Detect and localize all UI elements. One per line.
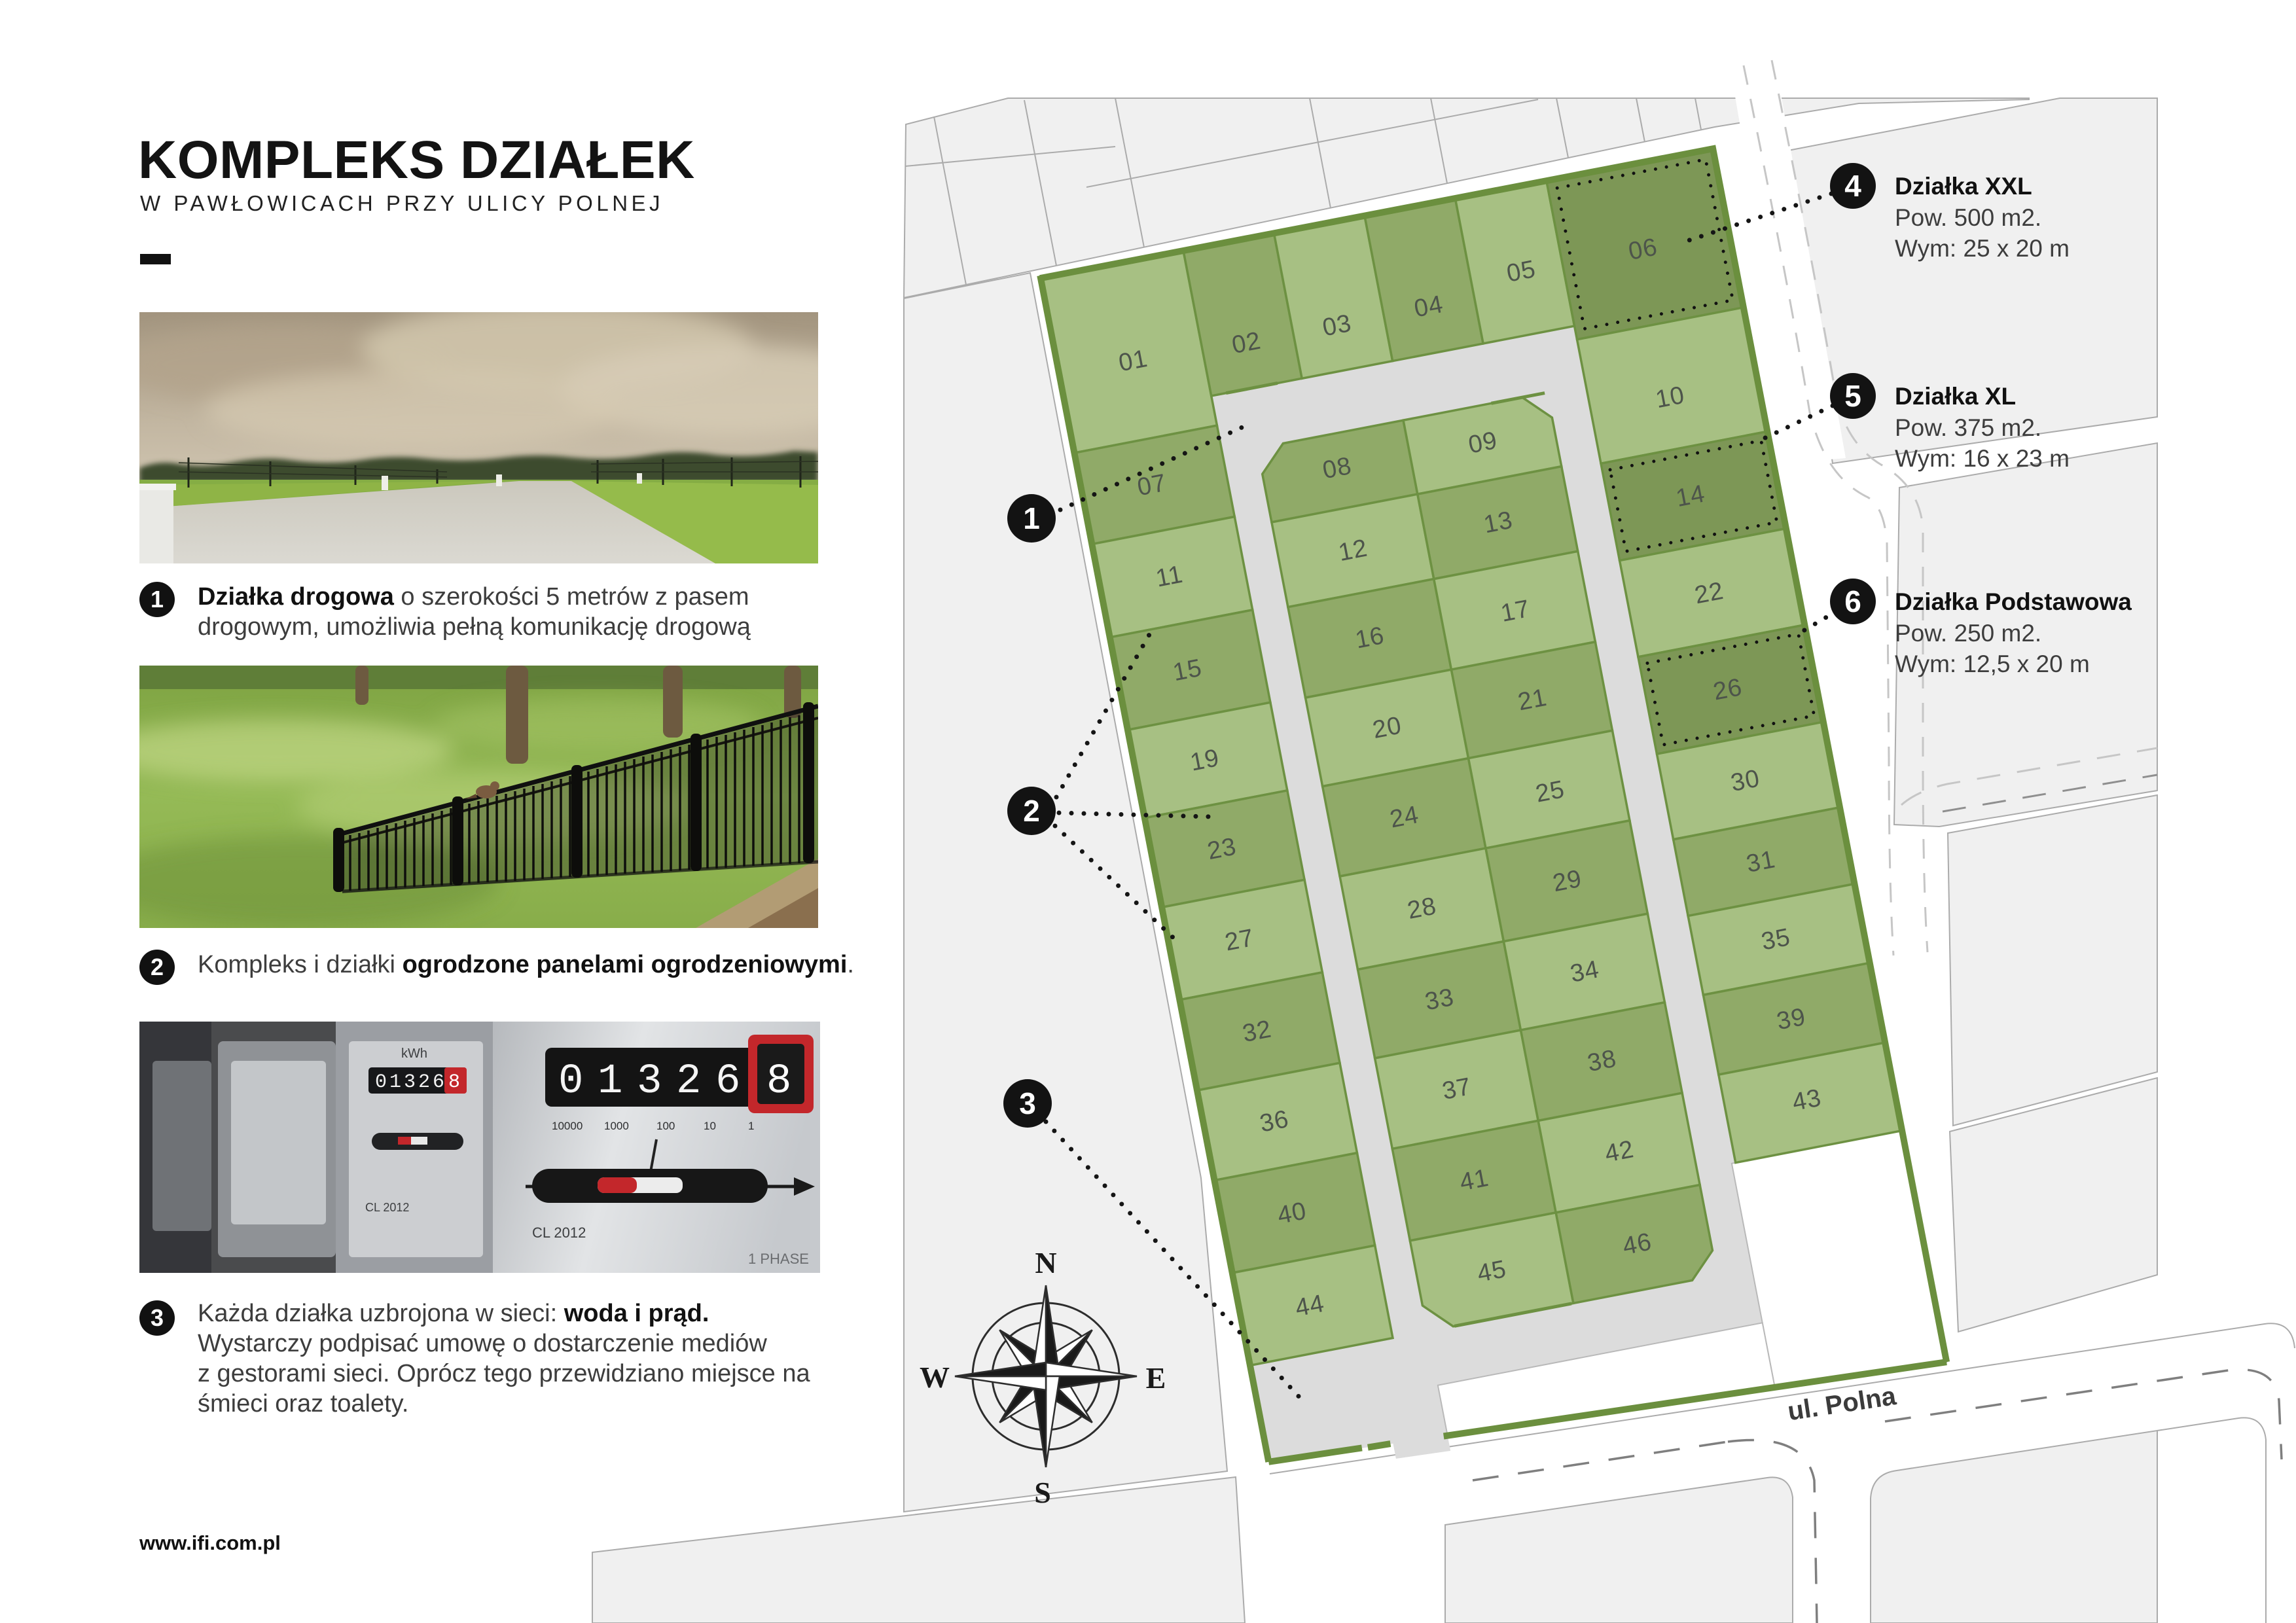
svg-text:33: 33 [1423, 984, 1456, 1016]
svg-text:31: 31 [1744, 846, 1778, 878]
svg-text:03: 03 [1320, 310, 1354, 342]
svg-text:06: 06 [1626, 233, 1660, 266]
svg-text:37: 37 [1440, 1073, 1473, 1105]
svg-text:23: 23 [1205, 833, 1238, 866]
svg-text:N: N [1035, 1246, 1056, 1279]
svg-text:21: 21 [1516, 684, 1549, 717]
svg-text:22: 22 [1693, 577, 1726, 610]
svg-text:05: 05 [1505, 255, 1538, 288]
svg-text:ul. Polna: ul. Polna [1785, 1382, 1898, 1426]
svg-text:01: 01 [1117, 345, 1150, 378]
svg-text:02: 02 [1230, 327, 1263, 360]
svg-text:25: 25 [1534, 776, 1567, 808]
svg-text:29: 29 [1551, 865, 1584, 898]
svg-text:4: 4 [1844, 169, 1861, 203]
svg-text:43: 43 [1790, 1084, 1823, 1116]
svg-text:S: S [1034, 1476, 1051, 1509]
svg-text:Pow. 250 m2.: Pow. 250 m2. [1895, 620, 2041, 647]
svg-text:3: 3 [1019, 1086, 1036, 1120]
svg-text:Wym: 12,5 x 20 m: Wym: 12,5 x 20 m [1895, 651, 2090, 677]
svg-text:27: 27 [1223, 924, 1256, 957]
svg-text:5: 5 [1844, 379, 1861, 413]
svg-text:6: 6 [1844, 584, 1861, 618]
svg-text:28: 28 [1405, 892, 1439, 925]
svg-text:20: 20 [1371, 711, 1404, 744]
svg-text:2: 2 [1023, 794, 1040, 828]
svg-text:26: 26 [1711, 673, 1744, 706]
svg-text:38: 38 [1585, 1045, 1619, 1078]
svg-text:35: 35 [1759, 923, 1793, 956]
svg-text:16: 16 [1353, 622, 1386, 654]
svg-text:Pow. 500 m2.: Pow. 500 m2. [1895, 204, 2041, 231]
svg-text:13: 13 [1482, 507, 1515, 539]
svg-text:Działka XL: Działka XL [1895, 383, 2016, 410]
svg-text:12: 12 [1336, 534, 1370, 567]
svg-text:41: 41 [1458, 1164, 1491, 1197]
svg-text:30: 30 [1729, 764, 1762, 797]
svg-text:45: 45 [1475, 1255, 1509, 1288]
svg-text:32: 32 [1240, 1015, 1274, 1048]
svg-text:11: 11 [1153, 560, 1185, 592]
svg-text:44: 44 [1293, 1290, 1327, 1323]
svg-text:W: W [920, 1361, 950, 1394]
svg-text:10: 10 [1653, 382, 1687, 414]
svg-text:Pow. 375 m2.: Pow. 375 m2. [1895, 414, 2041, 441]
svg-text:08: 08 [1320, 452, 1354, 485]
svg-text:04: 04 [1412, 291, 1445, 323]
svg-text:40: 40 [1275, 1197, 1308, 1230]
svg-text:E: E [1146, 1361, 1166, 1395]
svg-text:19: 19 [1188, 744, 1221, 777]
svg-text:Wym: 25 x 20 m: Wym: 25 x 20 m [1895, 235, 2070, 262]
svg-text:Działka XXL: Działka XXL [1895, 173, 2032, 200]
svg-text:34: 34 [1568, 955, 1602, 988]
svg-text:39: 39 [1774, 1003, 1808, 1036]
svg-text:15: 15 [1171, 654, 1204, 687]
svg-text:Działka Podstawowa: Działka Podstawowa [1895, 588, 2132, 615]
svg-text:14: 14 [1674, 480, 1707, 512]
svg-text:24: 24 [1388, 801, 1421, 834]
svg-text:46: 46 [1621, 1228, 1654, 1260]
svg-text:17: 17 [1499, 595, 1532, 628]
svg-text:42: 42 [1603, 1135, 1636, 1168]
svg-text:Wym: 16 x 23 m: Wym: 16 x 23 m [1895, 445, 2070, 472]
svg-text:09: 09 [1466, 427, 1499, 459]
svg-text:1: 1 [1023, 501, 1040, 535]
svg-text:36: 36 [1257, 1105, 1291, 1138]
